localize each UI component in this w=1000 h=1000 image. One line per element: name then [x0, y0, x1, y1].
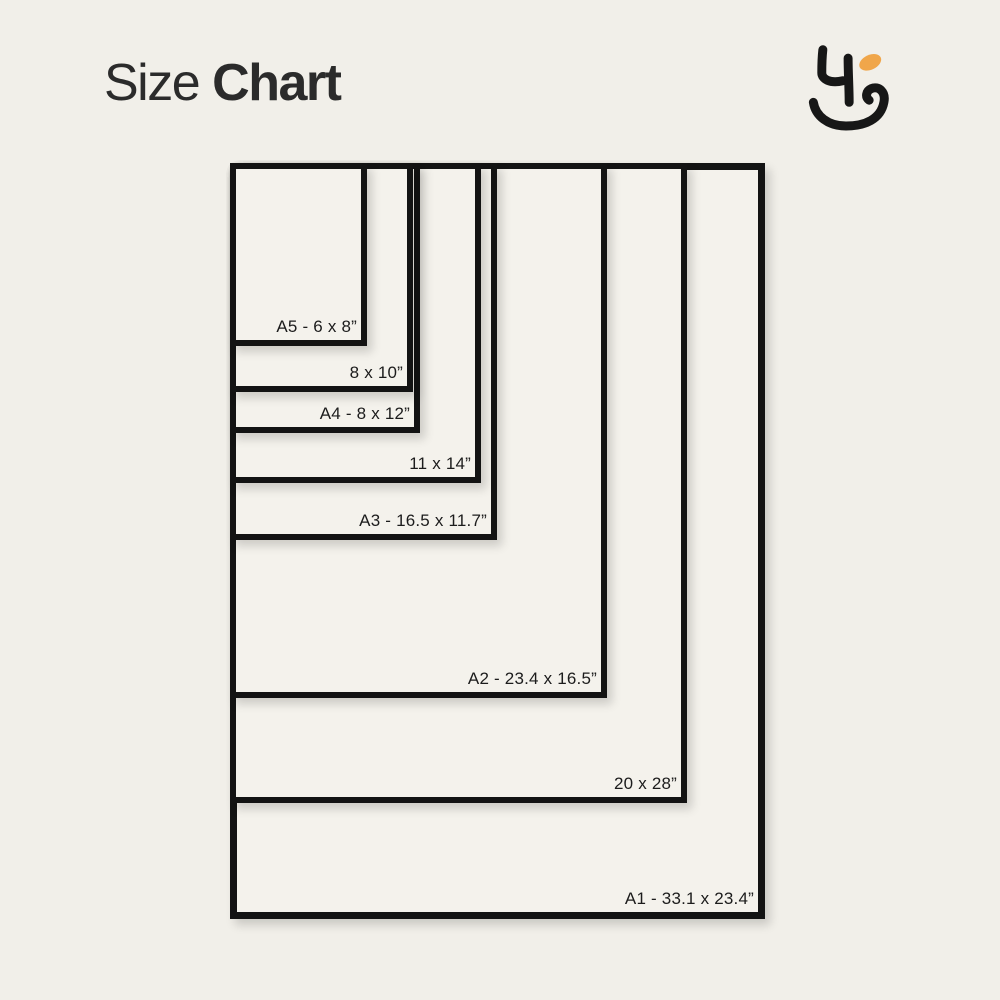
page-title: SizeChart [104, 56, 340, 111]
size-label-11x14: 11 x 14” [409, 454, 471, 474]
page-title-bold: Chart [212, 54, 340, 112]
size-diagram: A1 - 33.1 x 23.4”20 x 28”A2 - 23.4 x 16.… [230, 163, 770, 923]
size-label-8x10: 8 x 10” [350, 363, 403, 383]
logo-stroke-left [822, 50, 843, 82]
logo-accent-dot [857, 51, 884, 74]
size-label-A1: A1 - 33.1 x 23.4” [625, 889, 754, 909]
size-label-A2: A2 - 23.4 x 16.5” [468, 669, 597, 689]
size-label-20x28: 20 x 28” [614, 774, 677, 794]
size-rect-A5: A5 - 6 x 8” [230, 163, 367, 346]
brand-logo-icon [806, 36, 906, 136]
size-label-A3: A3 - 16.5 x 11.7” [359, 511, 487, 531]
page-title-regular: Size [104, 54, 199, 112]
logo-stroke-stem [848, 58, 849, 102]
size-label-A5: A5 - 6 x 8” [276, 317, 357, 337]
size-label-A4: A4 - 8 x 12” [320, 404, 410, 424]
